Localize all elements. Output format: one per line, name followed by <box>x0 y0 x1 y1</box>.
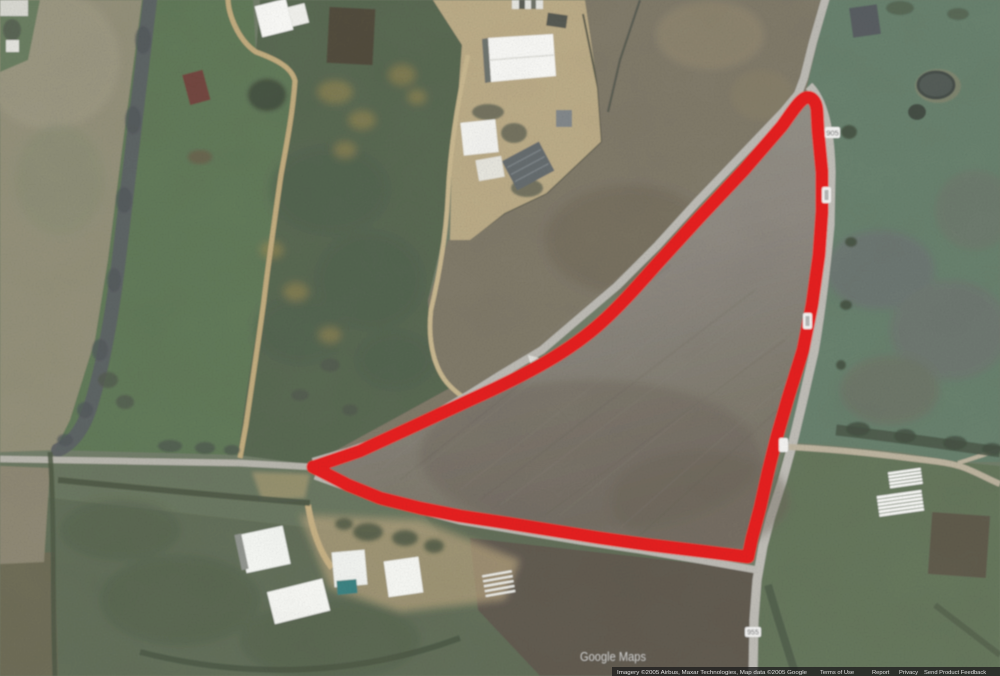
svg-text:Send Product Feedback: Send Product Feedback <box>924 670 986 676</box>
svg-text:Terms of Use: Terms of Use <box>820 670 854 676</box>
svg-text:Privacy: Privacy <box>899 670 918 676</box>
svg-text:Imagery ©2005 Airbus, Maxar Te: Imagery ©2005 Airbus, Maxar Technologies… <box>617 669 807 676</box>
svg-text:Google Maps: Google Maps <box>580 650 646 664</box>
svg-text:Report: Report <box>872 670 890 676</box>
